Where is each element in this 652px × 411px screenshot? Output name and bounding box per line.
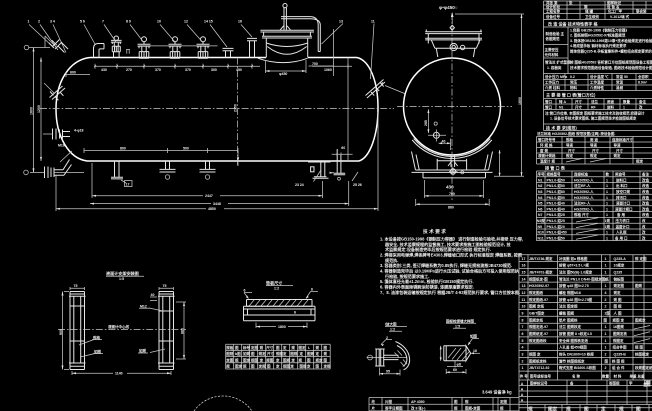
svg-text:φ8: φ8 [457, 363, 462, 367]
svg-text:370: 370 [185, 68, 191, 72]
svg-text:图: 图 [324, 357, 328, 362]
svg-text:1: 1 [606, 184, 608, 188]
svg-text:4-φ18: 4-φ18 [74, 129, 84, 133]
svg-text:进料: 进料 [607, 104, 615, 109]
svg-text:1: 1 [606, 178, 608, 182]
svg-text:出 料口: 出 料口 [616, 183, 628, 188]
svg-text:图规纸定-97: 图规纸定-97 [529, 331, 548, 336]
svg-text:规定: 规定 [613, 153, 622, 158]
svg-text:规图 定: 规图 定 [528, 352, 541, 357]
svg-text:器安全, 技术监察规程的监督施工, 技术要求按施工图检验规范: 器安全, 技术监察规程的监督施工, 技术要求按施工图检验规范设计, 技 [384, 241, 511, 247]
svg-text:1:5: 1:5 [455, 324, 460, 328]
svg-text:V-1012璃 式: V-1012璃 式 [610, 14, 630, 19]
svg-text:定规: 定规 [323, 364, 332, 369]
svg-text:规定: 规定 [315, 357, 324, 362]
svg-text:定: 定 [306, 364, 311, 369]
svg-text:规: 规 [528, 406, 533, 411]
svg-text:材 料: 材 料 [613, 374, 622, 379]
svg-text:管口符号号: 管口符号号 [538, 137, 556, 142]
svg-text:8.9m³: 8.9m³ [638, 81, 648, 85]
svg-text:规: 规 [453, 406, 458, 411]
svg-text:备注: 备注 [641, 172, 650, 177]
svg-text:垫片 图规柣: 垫片 图规柣 [559, 317, 578, 322]
svg-text:环 规 格: 环 规 格 [540, 142, 553, 147]
svg-text:图规: 图规 [307, 351, 315, 356]
svg-text:N3: N3 [538, 190, 543, 194]
svg-text:φ•φ450○: φ•φ450○ [439, 5, 458, 10]
svg-text:液面计规格: 液面计规格 [538, 153, 556, 158]
svg-text:5: 5 [522, 339, 524, 343]
svg-text:图定: 图定 [243, 357, 250, 362]
svg-text:500: 500 [183, 146, 189, 150]
svg-text:16: 16 [522, 264, 526, 268]
svg-text:2350: 2350 [233, 104, 237, 112]
svg-text:1600: 1600 [30, 107, 34, 115]
svg-text:1: 1 [605, 332, 607, 336]
svg-text:4: 4 [381, 82, 383, 86]
svg-text:图: 图 [605, 358, 609, 363]
svg-text:尺寸: 尺寸 [575, 99, 583, 104]
svg-text:1:5: 1:5 [119, 277, 124, 281]
svg-text:压力表口: 压力表口 [616, 218, 630, 223]
svg-text:7: 7 [102, 20, 104, 24]
svg-text:1: 1 [623, 105, 625, 109]
svg-text:370: 370 [155, 68, 161, 72]
svg-text:管口: 管口 [545, 99, 553, 104]
svg-text:AP 4050: AP 4050 [411, 400, 425, 404]
svg-text:改造: 改造 [642, 206, 650, 211]
svg-text:物料: 物料 [570, 85, 578, 90]
svg-text:规图: 规图 [282, 364, 291, 369]
svg-text:图规定纸: 图规定纸 [529, 317, 543, 322]
svg-text:人孔规: 人孔规 [616, 230, 627, 235]
svg-text:规 图: 规 图 [613, 297, 622, 302]
svg-text:规定: 规定 [258, 351, 266, 356]
svg-text:17: 17 [522, 257, 526, 261]
svg-text:1: 1 [28, 20, 30, 24]
svg-text:法兰 图规柣定: 法兰 图规柣定 [559, 324, 581, 329]
svg-text:图定: 图定 [235, 364, 242, 369]
svg-text:PN1.0-如50: PN1.0-如50 [547, 235, 565, 240]
svg-text:2图: 2图 [605, 311, 611, 316]
svg-text:规: 规 [290, 345, 295, 350]
svg-text:Q235: Q235 [614, 271, 623, 275]
svg-text:图规定柣: 图规定柣 [613, 331, 627, 336]
svg-text:技术要求: 技术要求 [423, 228, 447, 235]
svg-text:PN1.0-如80: PN1.0-如80 [547, 189, 565, 194]
svg-text:规 定图: 规 定图 [634, 256, 647, 261]
svg-text:8 9: 8 9 [126, 20, 131, 24]
svg-text:图: 图 [276, 345, 280, 350]
svg-text:设 备 名: 设 备 名 [607, 4, 620, 9]
svg-text:1: 1 [605, 346, 607, 350]
svg-text:规: 规 [259, 345, 264, 350]
svg-text:定: 定 [315, 351, 320, 356]
svg-text:图规: 图规 [283, 357, 291, 362]
svg-text:规定图纸柣: 规定图纸柣 [528, 338, 547, 343]
svg-text:改造: 改造 [642, 212, 650, 217]
svg-text:改造: 改造 [642, 195, 650, 200]
svg-text:件 号: 件 号 [520, 374, 528, 379]
svg-text:法兰 图50(B)-1.0规定: 法兰 图50(B)-1.0规定 [559, 270, 593, 275]
svg-text:1. 设备位号技术要求图纸, 施工图规范技术检验图纸规定: 1. 设备位号技术要求图纸, 施工图规范技术检验图纸规定 [550, 116, 637, 121]
svg-text:1: 1 [605, 264, 607, 268]
svg-text:285: 285 [424, 120, 428, 126]
svg-text:JB/T4736-规定: JB/T4736-规定 [529, 256, 553, 261]
svg-text:接管 φ45 图5×2.75: 接管 φ45 图5×2.75 [559, 283, 589, 288]
svg-text:人孔盖 如450规图: 人孔盖 如450规图 [559, 345, 587, 350]
svg-text:N1: N1 [559, 105, 564, 109]
svg-text:液面计中心线: 液面计中心线 [108, 324, 129, 329]
svg-text:规格 尺寸: 规格 尺寸 [573, 212, 589, 217]
svg-text:11: 11 [371, 20, 375, 24]
svg-text:HG20592-人: HG20592-人 [574, 177, 594, 182]
svg-text:行检验, 按规范要求施工.: 行检验, 按规范要求施工. [384, 273, 429, 279]
svg-text:液面计口: 液面计口 [616, 201, 630, 206]
svg-text:序号: 序号 [537, 172, 546, 177]
svg-text:改造: 改造 [642, 201, 650, 206]
svg-text:10: 10 [522, 305, 526, 309]
svg-text:700: 700 [312, 62, 318, 66]
svg-text:11: 11 [522, 298, 526, 302]
svg-text:接管 图规 8 ×柣定4.5: 接管 图规 8 ×柣定4.5 [559, 331, 592, 336]
svg-text:1: 1 [606, 207, 608, 211]
svg-text:钢板图: 钢板图 [614, 276, 625, 281]
svg-text:安全阀 图规柣定纸: 安全阀 图规柣定纸 [559, 338, 588, 343]
svg-text:改造: 改造 [642, 189, 650, 194]
svg-text:尺寸: 尺寸 [267, 351, 275, 356]
svg-text:规: 规 [499, 406, 504, 411]
svg-text:规定: 规定 [589, 153, 598, 158]
svg-text:1规: 1规 [605, 218, 611, 223]
svg-text:图: 图 [251, 351, 255, 356]
svg-text:规图定纸-97: 规图定纸-97 [528, 324, 548, 329]
svg-text:液面计规口: 液面计规口 [615, 206, 633, 211]
svg-text:660: 660 [180, 328, 184, 334]
svg-text:柣 图 规: 柣 图 规 [612, 358, 625, 363]
svg-text:工程名称: 工程名称 [546, 9, 560, 14]
svg-text:图: 图 [604, 317, 608, 322]
svg-text:法兰标准 HG20592-图纸 规范放置(注两) 按设备图.: 法兰标准 HG20592-图纸 规范放置(注两) 按设备图. [537, 131, 615, 136]
svg-text:卫生级别: 卫生级别 [585, 14, 599, 19]
svg-text:规: 规 [566, 406, 571, 411]
svg-text:1: 1 [522, 366, 524, 370]
svg-text:图: 图 [251, 364, 255, 369]
svg-text:规格型号: 规格型号 [546, 172, 561, 177]
svg-text:改: 改 [642, 230, 646, 235]
svg-text:2: 2 [605, 353, 607, 357]
svg-text:M12: M12 [140, 304, 147, 308]
svg-text:易燃: 易燃 [615, 85, 624, 90]
svg-text:如规: 如规 [243, 351, 250, 356]
svg-text:柣图规定: 柣图规定 [635, 352, 649, 357]
svg-text:封头 DN1600×10 柣规: 封头 DN1600×10 柣规 [559, 352, 594, 357]
svg-text:如图: 如图 [94, 349, 101, 354]
svg-text:16: 16 [473, 349, 477, 353]
svg-text:16图规: 16图规 [613, 324, 624, 329]
svg-text:规定图: 规定图 [613, 283, 625, 288]
svg-text:HG20592-97: HG20592-97 [529, 284, 549, 288]
svg-text:主 要 接 管 口 表(管口方位): 主 要 接 管 口 表(管口方位) [546, 92, 596, 98]
svg-text:柣规图定纸: 柣规图定纸 [635, 365, 652, 370]
svg-text:鞍式支座 BI1600-S柣图: 鞍式支座 BI1600-S柣图 [559, 365, 596, 370]
svg-text:规: 规 [464, 399, 469, 404]
svg-text:2: 2 [605, 305, 607, 309]
svg-text:改: 改 [639, 104, 643, 109]
svg-text:改: 改 [642, 235, 646, 240]
svg-text:95: 95 [386, 370, 390, 374]
svg-text:全容积: 全容积 [637, 74, 649, 79]
svg-text:改: 改 [372, 399, 376, 404]
svg-text:规定图纸: 规定图纸 [528, 290, 543, 295]
svg-text:人 图: 人 图 [614, 311, 622, 316]
svg-text:图规: 图规 [226, 351, 233, 356]
svg-text:1:2: 1:2 [390, 327, 395, 331]
svg-text:补强圈 如a 规格图: 补强圈 如a 规格图 [558, 256, 588, 261]
svg-text:1规: 1规 [605, 224, 611, 229]
svg-text:2: 2 [38, 20, 40, 24]
svg-text:导液: 导液 [590, 142, 598, 147]
svg-text:1: 1 [606, 236, 608, 240]
svg-text:7: 7 [522, 325, 524, 329]
svg-text:16: 16 [238, 20, 242, 24]
svg-text:PN1.0-如20: PN1.0-如20 [547, 224, 565, 229]
svg-text:技术要求规范图纸设备制造, 图纸技术检验规范设计图纸规范: 技术要求规范图纸设备制造, 图纸技术检验规范设计图纸规范 [570, 65, 652, 70]
svg-text:3 4: 3 4 [50, 20, 55, 24]
svg-text:连接标准: 连接标准 [573, 172, 588, 177]
svg-text:规格: 规格 [225, 345, 233, 350]
svg-text:组合件图: 组合件图 [613, 345, 627, 350]
svg-text:图: 图 [307, 357, 311, 362]
svg-text:3. 容器类别:三类, 签订焊缝系数为0.85执行, 焊缝无: 3. 容器类别:三类, 签订焊缝系数为0.85执行, 焊缝无损检测按JB4730… [380, 262, 512, 268]
svg-text:1: 1 [605, 271, 607, 275]
svg-text:1200: 1200 [37, 105, 41, 113]
svg-text:3: 3 [522, 353, 524, 357]
svg-text:2447: 2447 [205, 194, 213, 198]
svg-text:图: 图 [316, 364, 320, 369]
svg-text:图: 图 [267, 364, 271, 369]
svg-text:N10: N10 [538, 231, 544, 235]
svg-text:PN1.0-如40: PN1.0-如40 [547, 206, 565, 211]
svg-text:进料口: 进料口 [616, 177, 627, 182]
svg-text:定: 定 [282, 345, 287, 350]
svg-text:1060: 1060 [324, 68, 332, 72]
svg-text:签图规: 签图规 [608, 381, 620, 386]
svg-text:PN1.0-如50: PN1.0-如50 [547, 183, 565, 188]
svg-text:40: 40 [442, 139, 446, 143]
svg-text:放空口规: 放空口规 [615, 189, 630, 194]
svg-text:国标检焊缝大样图: 国标检焊缝大样图 [446, 318, 474, 323]
svg-text:定规: 定规 [258, 364, 266, 369]
svg-text:φ450: φ450 [279, 72, 287, 76]
svg-text:1: 1 [605, 277, 607, 281]
svg-text:3. 筵体按GB150-1998第10章+技术检验规定进行检: 3. 筵体按GB150-1998第10章+技术检验规定进行检验 [570, 38, 652, 43]
svg-text:2: 2 [522, 359, 524, 363]
svg-text:GB/T图定: GB/T图定 [529, 311, 545, 316]
svg-text:12: 12 [522, 291, 526, 295]
svg-text:联合装: 联合装 [636, 9, 647, 14]
svg-text:60: 60 [341, 146, 345, 150]
svg-text:规: 规 [242, 364, 247, 369]
svg-text:数量: 数量 [601, 374, 610, 379]
svg-text:规定: 规定 [565, 153, 574, 158]
svg-text:度 规: 度 规 [540, 148, 548, 153]
svg-text:导液: 导液 [566, 142, 574, 147]
svg-text:尺寸: 尺寸 [592, 148, 600, 153]
svg-text:8: 8 [522, 318, 524, 322]
svg-text:规格: 规格 [92, 335, 100, 340]
svg-text:3.649 设备净 kg: 3.649 设备净 kg [482, 389, 512, 395]
svg-text:60: 60 [453, 368, 457, 372]
svg-text:规: 规 [225, 364, 230, 369]
svg-text:10规定: 10规定 [614, 263, 625, 268]
svg-text:规定: 规定 [635, 159, 644, 164]
svg-text:螺梽 图规: 螺梽 图规 [559, 311, 574, 316]
svg-text:备: 备 [569, 381, 574, 386]
svg-text:9: 9 [522, 312, 524, 316]
svg-text:技 术 要 求(规范): 技 术 要 求(规范) [546, 124, 577, 130]
svg-text:连接标准尺寸: 连接标准尺寸 [611, 137, 633, 142]
svg-text:改 8 张(-): 改 8 张(-) [411, 406, 425, 411]
svg-text:75: 75 [74, 284, 78, 288]
svg-text:接 管 口 表: 接 管 口 表 [545, 165, 566, 171]
svg-text:备注: 备注 [638, 99, 647, 104]
svg-text:1: 1 [606, 213, 608, 217]
svg-text:2. 焊接采用电弹焊,焊条牌号E4303,焊缝坡口形式 执行: 2. 焊接采用电弹焊,焊条牌号E4303,焊缝坡口形式 执行标准规定 焊缝系数,… [380, 252, 523, 258]
svg-text:图规: 图规 [644, 382, 652, 387]
svg-text:尺寸: 尺寸 [616, 148, 624, 153]
svg-text:法兰RF-人: 法兰RF-人 [574, 183, 591, 188]
svg-text:依据规范: 依据规范 [546, 36, 560, 41]
svg-text:1: 1 [605, 284, 607, 288]
svg-text:介质特性: 介质特性 [589, 85, 604, 90]
svg-text:1. 本设备按GB150-1998《钢制压力容器》 进行制造: 1. 本设备按GB150-1998《钢制压力容器》 进行制造检验与验收,并接受 … [380, 236, 523, 242]
svg-text:PN1.0-如40: PN1.0-如40 [547, 201, 565, 206]
svg-text:430: 430 [446, 185, 454, 190]
svg-text:规 图: 规 图 [634, 345, 643, 350]
svg-text:4.用成型孕板 钢材标准执行规定要求: 4.用成型孕板 钢材标准执行规定要求 [570, 43, 627, 48]
svg-text:图定: 图定 [299, 345, 307, 350]
svg-text:设计温度 ℃: 设计温度 ℃ [590, 74, 609, 79]
svg-text:图: 图 [454, 399, 458, 404]
svg-text:字: 字 [629, 381, 633, 386]
svg-text:图: 图 [235, 345, 239, 350]
svg-text:标号: 标号 [242, 345, 250, 350]
svg-text:螺栓 规图M16: 螺栓 规图M16 [559, 290, 581, 295]
svg-text:管口: 管口 [545, 104, 553, 109]
svg-text:注:管口方位按, 本图规定 图纸要求施工技术及验收规范,容器: 注:管口方位按, 本图规定 图纸要求施工技术及验收规范,容器设计 [545, 111, 645, 116]
svg-text:用 途: 用 途 [590, 137, 598, 142]
svg-text:储 罐: 储 罐 [584, 9, 593, 14]
svg-text:4. 容器制造完毕后 以0.19MPa进行水压试验, 试验合: 4. 容器制造完毕后 以0.19MPa进行水压试验, 试验合格后方可投入使用规范… [380, 268, 520, 274]
svg-text:按 图纸HG20592 答机管口方位图纸规范图设备工程图纸,: 按 图纸HG20592 答机管口方位图纸规范图设备工程图纸,设计图纸 [570, 59, 652, 64]
svg-text:1600: 1600 [518, 97, 522, 105]
svg-text:定: 定 [289, 364, 294, 369]
svg-text:接管 φ57×3.5 L=规: 接管 φ57×3.5 L=规 [559, 263, 589, 268]
svg-text:2: 2 [605, 366, 607, 370]
svg-text:1: 1 [605, 325, 607, 329]
svg-text:25 26: 25 26 [353, 183, 362, 187]
svg-text:垫板尺寸: 垫板尺寸 [266, 280, 282, 286]
svg-text:图规纸定柣: 图规纸定柣 [529, 358, 547, 363]
svg-text:规: 规 [619, 406, 624, 411]
svg-text:定图: 定图 [499, 399, 508, 404]
svg-text:签字日期图: 签字日期图 [384, 406, 403, 411]
svg-text:名 称: 名 称 [572, 374, 580, 379]
svg-text:13: 13 [522, 284, 526, 288]
svg-text:860: 860 [448, 205, 454, 209]
svg-text:300: 300 [211, 68, 217, 72]
svg-text:图样标记号: 图样标记号 [530, 381, 548, 386]
svg-text:N2: N2 [538, 184, 543, 188]
svg-text:化工厂甲: 化工厂甲 [608, 9, 622, 14]
svg-text:规范执.: 规范执. [384, 257, 398, 263]
svg-text:图规定: 图规定 [635, 317, 646, 322]
svg-text:17: 17 [126, 182, 130, 186]
svg-text:图规: 图规 [290, 351, 297, 356]
svg-text:常温 50: 常温 50 [616, 74, 628, 79]
svg-text:700: 700 [449, 192, 455, 196]
svg-text:6: 6 [311, 288, 313, 292]
svg-text:温度计口: 温度计口 [616, 224, 630, 229]
svg-text:PN1.0-如50: PN1.0-如50 [547, 177, 565, 182]
svg-text:图规•定图: 图规•定图 [465, 406, 481, 411]
svg-text:备 用: 备 用 [616, 212, 625, 217]
svg-text:定: 定 [259, 357, 264, 362]
svg-text:450: 450 [236, 68, 242, 72]
svg-text:规图 定: 规图 定 [612, 317, 625, 322]
svg-text:主要受压: 主要受压 [545, 47, 559, 52]
svg-text:定: 定 [299, 351, 304, 356]
svg-text:5 6: 5 6 [80, 20, 85, 24]
svg-text:图规: 图规 [635, 283, 643, 288]
svg-text:2: 2 [605, 298, 607, 302]
svg-text:规: 规 [315, 345, 320, 350]
svg-text:75: 75 [163, 284, 167, 288]
svg-text:2: 2 [386, 336, 388, 340]
svg-text:尺寸: 尺寸 [266, 345, 274, 350]
svg-text:定: 定 [275, 364, 280, 369]
svg-text:规: 规 [234, 357, 239, 362]
svg-text:6: 6 [294, 310, 296, 314]
svg-text:定: 定 [290, 357, 295, 362]
svg-text:改: 改 [642, 224, 646, 229]
svg-text:PN1.0-如25: PN1.0-如25 [547, 212, 565, 217]
svg-text:法兰RF-人: 法兰RF-人 [574, 201, 591, 206]
svg-text:规图定: 规图定 [612, 338, 624, 343]
svg-text:规图纸定-图: 规图纸定-图 [528, 276, 548, 281]
svg-text:设计压力 MPa: 设计压力 MPa [545, 74, 567, 79]
svg-text:图号或标准号: 图号或标准号 [530, 374, 551, 379]
svg-text:270: 270 [126, 68, 132, 72]
svg-text:张: 张 [569, 0, 573, 5]
svg-text:元件材料: 元件材料 [545, 52, 559, 57]
svg-text:4: 4 [605, 291, 607, 295]
svg-text:0.2: 0.2 [570, 75, 575, 79]
svg-text:设备位号: 设备位号 [546, 14, 560, 19]
svg-text:6: 6 [522, 332, 524, 336]
svg-text:常温: 常温 [616, 80, 624, 85]
svg-text:数量: 数量 [622, 99, 631, 104]
svg-text:b图: b图 [235, 351, 241, 356]
svg-text:温度计 规: 温度计 规 [540, 159, 555, 164]
svg-text:14 15: 14 15 [204, 20, 213, 24]
svg-text:600: 600 [70, 71, 76, 75]
svg-text:14: 14 [522, 277, 526, 281]
svg-text:规图: 规图 [265, 357, 274, 362]
svg-text:40: 40 [151, 293, 155, 297]
svg-text:定图: 定图 [250, 345, 259, 350]
